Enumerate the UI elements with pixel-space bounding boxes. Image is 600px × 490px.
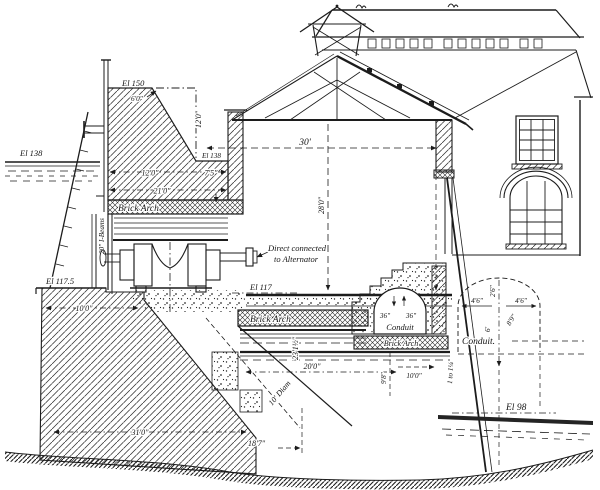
tailrace-brick-arch: Brick Arch: [238, 310, 368, 326]
label-brick-arch-upper: Brick Arch: [118, 204, 159, 214]
label-dim-23-1: 23'1½": [291, 336, 300, 360]
label-dim-4-6-right: 4'6": [515, 297, 528, 305]
label-el-98: El 98: [505, 403, 527, 413]
label-conduit1-h: 36": [405, 312, 417, 320]
label-dim-8-9: 8'9": [505, 312, 519, 327]
label-dim-6: 6': [484, 326, 492, 332]
conduit1-dims: 9'8" 10'0": [380, 352, 434, 396]
power-house-truss: [232, 52, 473, 130]
label-dim-12-0-v: 12'0": [194, 110, 203, 128]
dam-wall: El 150 6'0" 12'0" El 138 12'0" 7'5" 21'0…: [108, 78, 228, 202]
label-i-beams: 20" I-Beams: [98, 218, 106, 254]
intake-pole: [84, 60, 111, 212]
drawing-canvas: El 138 El 150 6'0" 12'0": [0, 0, 600, 490]
drawing-sheet: El 138 El 150 6'0" 12'0": [0, 0, 600, 490]
label-brick-arch-conduit: Brick Arch: [384, 339, 418, 348]
roof-finial-icon: [448, 4, 458, 7]
label-conduit1: Conduit: [386, 322, 414, 332]
label-el-150: El 150: [121, 78, 145, 88]
tailwater-el98: El 98: [438, 403, 593, 440]
concrete-block: [240, 390, 262, 412]
drive-shaft: [220, 248, 257, 266]
dim-18-7: 18'7": [248, 408, 302, 454]
label-conduit2: Conduit.: [462, 337, 495, 347]
alternator-note: Direct connected to Alternator: [257, 243, 327, 264]
label-dim-4-6-left: 4'6": [471, 297, 484, 305]
label-alternator-2: to Alternator: [274, 254, 319, 264]
label-dim-30: 30': [298, 138, 312, 148]
label-conduit1-w: 36": [379, 312, 391, 320]
hall-left-wall: [228, 112, 243, 200]
label-dim-12-0-h: 12'0": [141, 169, 159, 178]
label-dim-10-right: 10'0": [406, 372, 422, 380]
pole-bracket: [84, 121, 104, 138]
power-house: 30' 28'0": [207, 4, 593, 290]
label-el-138-left: El 138: [19, 148, 43, 158]
label-dim-21-0: 21'0": [153, 187, 171, 196]
headwater-el138: El 138: [5, 148, 100, 181]
label-dim-20-0: 20'0": [303, 362, 321, 371]
label-brick-arch-tail: Brick Arch: [250, 315, 291, 325]
label-dim-31-0: 31'0": [130, 428, 149, 437]
label-dim-7-5: 7'5": [204, 169, 218, 178]
hall-height-dim: 28'0": [317, 124, 328, 290]
monitor-windows: [368, 39, 542, 48]
label-el-117: El 117: [249, 282, 273, 292]
label-el-138-right: El 138: [201, 152, 221, 160]
roof-monitor: [312, 4, 584, 50]
conduit-36in: 36" 36" Conduit Brick Arch: [352, 263, 448, 349]
tailwater-surface: [438, 415, 593, 425]
cupola: [300, 5, 374, 56]
label-dim-2-6: 2'6": [489, 284, 497, 297]
label-alternator-1: Direct connected: [267, 243, 327, 253]
label-dim-18-7: 18'7": [248, 439, 266, 448]
label-slope: 1 to 1¼: [446, 361, 455, 384]
left-bank-foundation: 10'0" 31'0": [40, 288, 262, 474]
label-dim-28-0: 28'0": [317, 196, 326, 214]
upper-window: [512, 116, 562, 169]
hall-right-wall: [434, 120, 454, 254]
annex-building: [452, 50, 593, 256]
brick-arch-upper-band: Brick Arch: [108, 200, 243, 214]
concrete-block: [212, 352, 238, 390]
label-dim-9-8: 9'8": [380, 371, 388, 384]
embankment: [50, 112, 92, 288]
label-el-117-5: El 117.5: [45, 276, 74, 286]
label-dim-6-0: 6'0": [131, 95, 144, 103]
roof-finial-icon: [356, 5, 366, 8]
label-dim-10-0: 10'0": [75, 304, 93, 313]
slope-wall: 1 to 1¼: [446, 178, 492, 472]
arched-window: [500, 167, 572, 249]
